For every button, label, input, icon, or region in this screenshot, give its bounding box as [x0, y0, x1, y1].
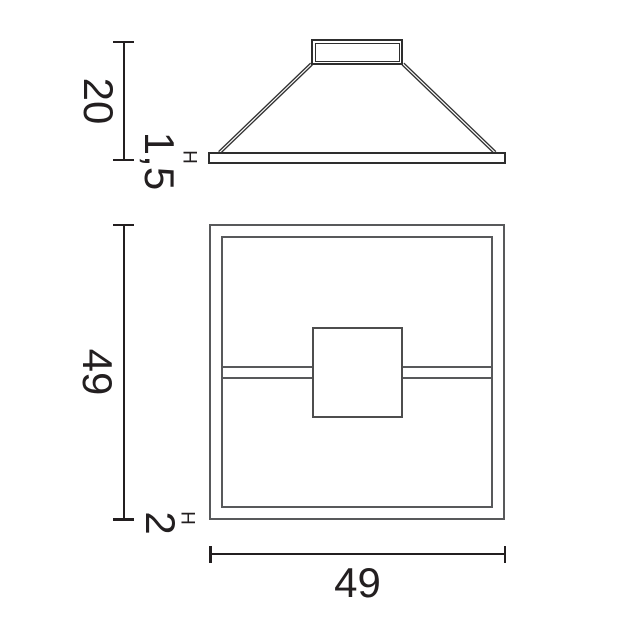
suspension-wire-left [219, 63, 313, 153]
dim-tick-width-right [504, 546, 507, 563]
dim-line-depth [123, 225, 125, 519]
dim-tick-depth-bottom [113, 518, 134, 521]
dim-tick-drop-bottom [113, 159, 134, 162]
dim-label-drop-length: 20 [77, 78, 119, 125]
suspension-wire-right [402, 63, 496, 153]
dim-label-profile-height-prefix: H [179, 150, 198, 164]
ceiling-canopy-rect [311, 39, 403, 65]
dim-label-frame-height: 2 [139, 511, 181, 534]
dimension-drawing-canvas: 20 1,5 H 49 2 H 49 [0, 0, 640, 640]
dim-label-depth: 49 [76, 349, 118, 396]
driver-box-rect [312, 327, 403, 418]
dim-line-width [210, 553, 505, 555]
dim-tick-width-left [209, 546, 212, 563]
ceiling-canopy-inner-line [315, 43, 400, 62]
fixture-profile-bar [208, 152, 506, 164]
dim-label-frame-height-prefix: H [178, 511, 197, 525]
dim-tick-drop-top [113, 41, 134, 44]
dim-label-width: 49 [334, 562, 381, 604]
dim-label-profile-height: 1,5 [138, 132, 180, 190]
dim-tick-depth-top [113, 224, 134, 227]
dim-line-drop [123, 42, 125, 160]
